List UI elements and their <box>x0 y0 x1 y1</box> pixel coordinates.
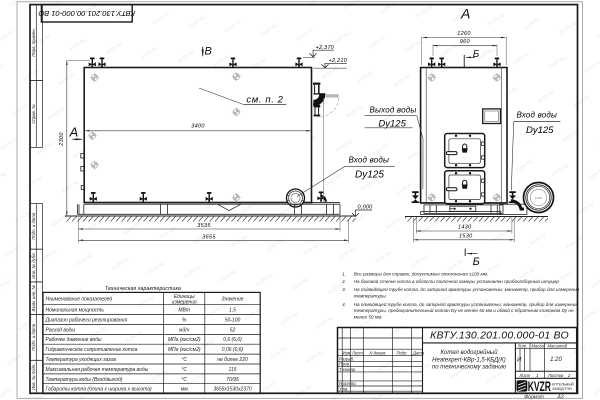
svg-text:А3: А3 <box>556 394 563 400</box>
svg-text:В: В <box>205 46 212 58</box>
svg-text:МВт: МВт <box>178 308 190 314</box>
svg-text:Взам. инв. №: Взам. инв. № <box>31 285 36 312</box>
svg-text:1530: 1530 <box>459 234 473 240</box>
svg-text:0,06 (0,6): 0,06 (0,6) <box>222 347 244 353</box>
svg-text:3400: 3400 <box>191 123 205 129</box>
svg-text:Подп. и дата: Подп. и дата <box>31 323 36 351</box>
svg-text:Все размеры для справок, допус: Все размеры для справок, допустимые откл… <box>354 272 489 277</box>
svg-text:по техническому заданию: по техническому заданию <box>432 365 507 371</box>
svg-text:3.: 3. <box>342 287 346 292</box>
svg-text:3655: 3655 <box>202 234 216 240</box>
svg-text:Heatexpert-КВр-1,5-КБД(К): Heatexpert-КВр-1,5-КБД(К) <box>432 358 506 364</box>
svg-text:4.: 4. <box>342 302 346 307</box>
svg-text:960: 960 <box>460 39 471 45</box>
svg-text:мм: мм <box>181 386 188 392</box>
svg-text:1,5: 1,5 <box>229 308 236 314</box>
svg-text:+2,210: +2,210 <box>329 58 348 64</box>
svg-text:Dy125: Dy125 <box>355 169 384 180</box>
svg-text:3655х1530х2370: 3655х1530х2370 <box>213 386 252 392</box>
svg-text:На отводящей трубе котла, до з: На отводящей трубе котла, до запорной ар… <box>354 301 579 307</box>
svg-text:70/95: 70/95 <box>226 377 239 383</box>
svg-text:52: 52 <box>230 327 236 333</box>
svg-text:На подводящей трубе котла, до: На подводящей трубе котла, до запорной а… <box>354 286 580 292</box>
svg-text:°С: °С <box>181 377 187 383</box>
svg-text:МПа (кгс/см2): МПа (кгс/см2) <box>168 337 201 343</box>
svg-text:Максимальная рабочая температу: Максимальная рабочая температура воды <box>46 367 149 373</box>
svg-text:°С: °С <box>181 367 187 373</box>
svg-text:измерения: измерения <box>172 300 197 306</box>
svg-text:+2,370: +2,370 <box>316 45 335 51</box>
svg-text:Номинальная мощность: Номинальная мощность <box>46 308 105 314</box>
svg-text:температуры, предохранительный: температуры, предохранительный клапан Dу… <box>354 307 574 313</box>
svg-text:температуры.: температуры. <box>354 294 387 299</box>
svg-text:Лист: Лист <box>519 373 531 378</box>
svg-text:%: % <box>182 317 187 323</box>
svg-text:Расход воды: Расход воды <box>46 327 76 333</box>
svg-text:Б: Б <box>473 256 480 268</box>
svg-text:N докум.: N докум. <box>370 350 387 355</box>
svg-text:Техническая характеристика: Техническая характеристика <box>105 286 181 292</box>
svg-text:Выход воды: Выход воды <box>370 106 417 115</box>
svg-text:0,6 (6,0): 0,6 (6,0) <box>223 337 242 343</box>
svg-text:м3/ч: м3/ч <box>179 327 190 333</box>
svg-text:Пров.: Пров. <box>339 362 350 367</box>
svg-text:Листов: Листов <box>547 373 564 378</box>
svg-text:см. п. 2: см. п. 2 <box>246 94 283 105</box>
svg-text:Котел водогрейный: Котел водогрейный <box>440 349 498 356</box>
svg-text:Т контр.: Т контр. <box>339 367 356 372</box>
svg-text:КВТУ.130.201.00.000-01 ВО: КВТУ.130.201.00.000-01 ВО <box>38 9 135 18</box>
svg-text:°С: °С <box>181 357 187 363</box>
svg-text:ЗАВОД РЭП: ЗАВОД РЭП <box>552 387 573 391</box>
svg-text:КВТУ.130.201.00.000-01 ВО: КВТУ.130.201.00.000-01 ВО <box>430 330 569 342</box>
svg-text:1:20: 1:20 <box>550 357 562 363</box>
svg-text:Значение: Значение <box>222 297 244 303</box>
svg-text:115: 115 <box>229 367 237 373</box>
svg-text:2300: 2300 <box>59 132 65 147</box>
svg-text:Подп.: Подп. <box>397 350 408 355</box>
svg-text:1260: 1260 <box>457 31 471 37</box>
svg-text:Перв. примен.: Перв. примен. <box>31 28 36 57</box>
svg-text:50-100: 50-100 <box>225 317 241 323</box>
svg-text:И: И <box>517 358 522 364</box>
svg-text:Лит.: Лит. <box>517 344 528 349</box>
svg-text:Лист: Лист <box>351 350 363 355</box>
svg-text:На боковой стенке котла в обла: На боковой стенке котла в области топочн… <box>354 278 560 284</box>
svg-text:менее 50 мм.: менее 50 мм. <box>354 314 383 319</box>
svg-text:KVZR: KVZR <box>535 196 542 200</box>
svg-text:Рабочее давление воды: Рабочее давление воды <box>46 337 102 343</box>
svg-text:Вход воды: Вход воды <box>517 111 558 120</box>
svg-text:1: 1 <box>536 373 538 378</box>
svg-text:0,000: 0,000 <box>358 205 374 211</box>
svg-text:не более 220: не более 220 <box>217 357 248 363</box>
svg-text:Утв.: Утв. <box>339 386 349 391</box>
svg-text:А: А <box>460 6 470 22</box>
svg-text:Подп. и дата: Подп. и дата <box>31 212 36 240</box>
svg-text:Изм.: Изм. <box>343 350 352 355</box>
svg-text:Масштаб: Масштаб <box>548 344 568 349</box>
svg-text:МПа (кгс/см2): МПа (кгс/см2) <box>168 347 201 353</box>
svg-text:Температура воды (Вход/выход): Температура воды (Вход/выход) <box>46 377 123 383</box>
svg-text:Температура уходящих газов: Температура уходящих газов <box>46 357 117 363</box>
svg-text:Dy125: Dy125 <box>526 125 554 136</box>
svg-text:Инв. № дубл.: Инв. № дубл. <box>31 252 36 278</box>
svg-text:KVZR: KVZR <box>528 380 551 394</box>
svg-text:Инв. № подл.: Инв. № подл. <box>31 363 36 390</box>
svg-text:Габариты котла (длина х ширина: Габариты котла (длина х ширина х высота) <box>46 386 153 392</box>
svg-text:1.: 1. <box>342 272 346 277</box>
svg-text:А: А <box>69 125 79 140</box>
svg-text:Наименование показателей: Наименование показателей <box>46 296 113 303</box>
svg-text:Дата: Дата <box>412 350 425 355</box>
svg-text:1430: 1430 <box>458 225 472 231</box>
svg-text:Диапазон рабочего регулировани: Диапазон рабочего регулирования <box>45 317 128 323</box>
svg-text:3535: 3535 <box>197 223 211 229</box>
svg-text:Масса: Масса <box>532 344 545 349</box>
svg-text:Вход воды: Вход воды <box>349 155 390 164</box>
svg-text:Гидравлическое сопротивление к: Гидравлическое сопротивление котла <box>46 347 138 353</box>
svg-text:Б: Б <box>473 49 480 60</box>
svg-text:Справ. №: Справ. № <box>31 104 36 124</box>
svg-text:2.: 2. <box>341 279 346 284</box>
svg-text:Формат: Формат <box>524 394 544 400</box>
